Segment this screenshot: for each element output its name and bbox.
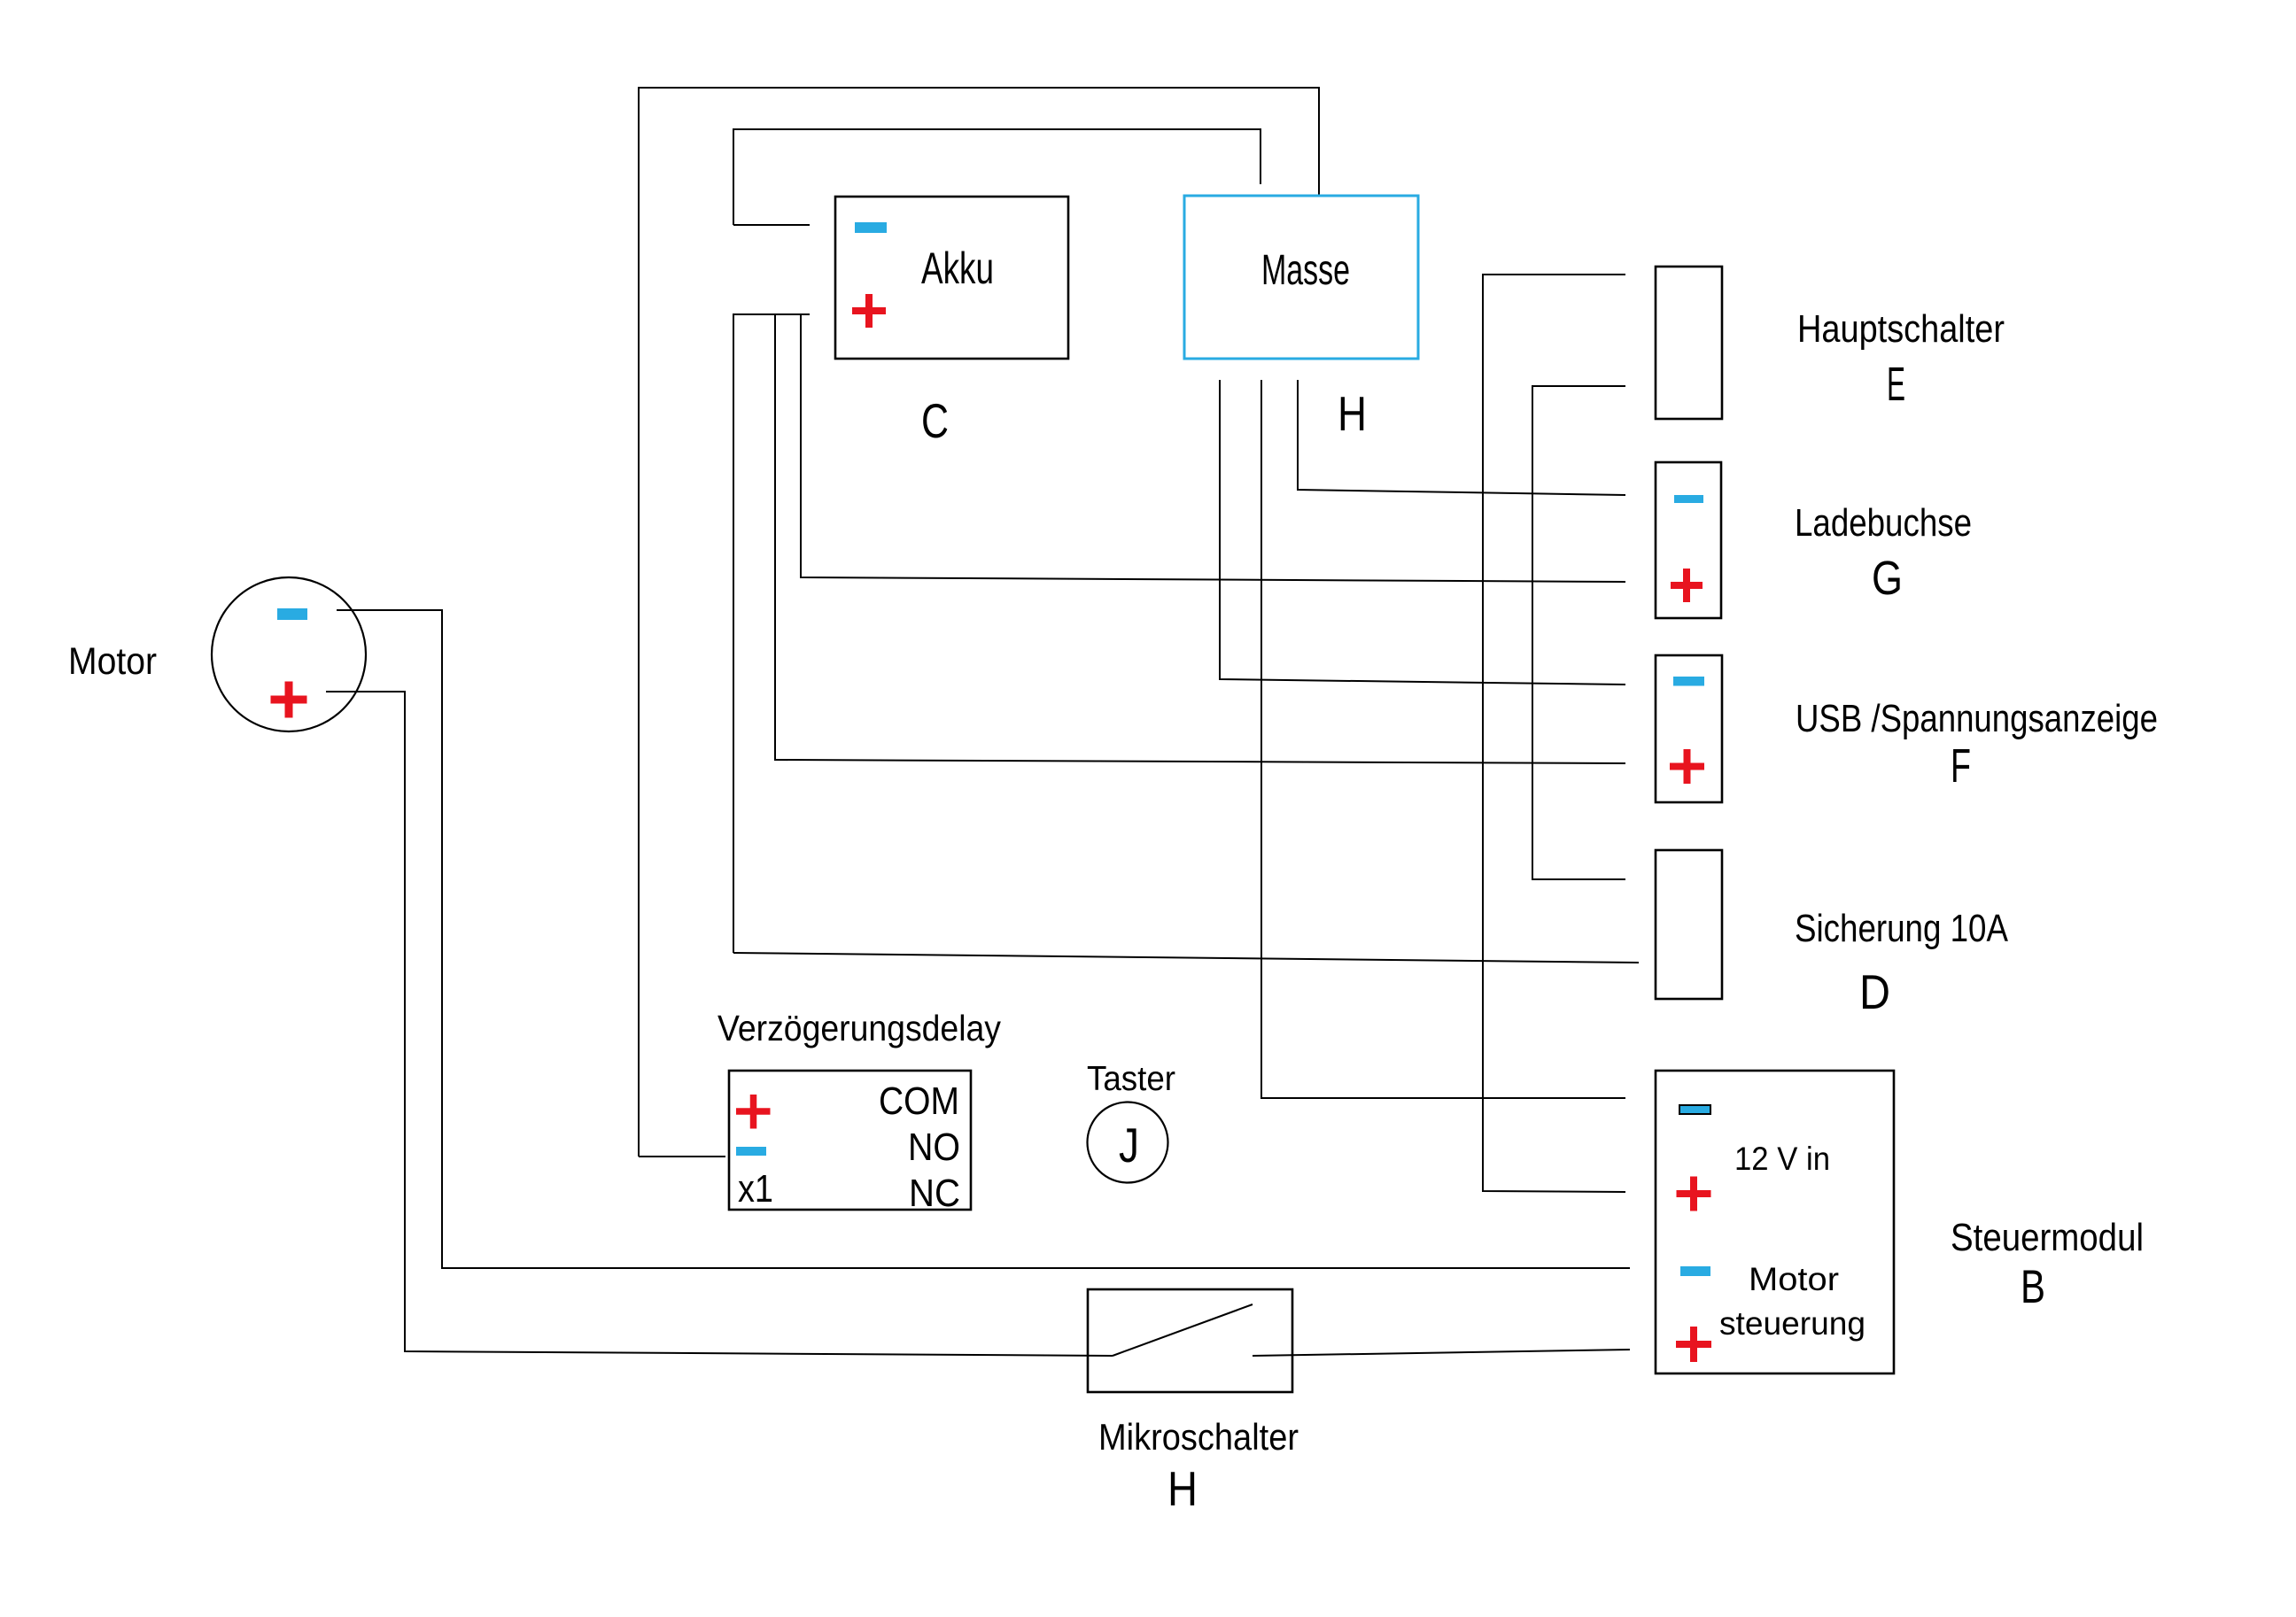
svg-text:12 V in: 12 V in [1734, 1141, 1830, 1177]
svg-text:H: H [1167, 1461, 1198, 1516]
svg-text:steuerung: steuerung [1719, 1305, 1865, 1342]
svg-text:E: E [1887, 358, 1905, 411]
svg-text:C: C [921, 393, 949, 448]
svg-text:H: H [1338, 386, 1367, 441]
svg-text:Hauptschalter: Hauptschalter [1797, 307, 2005, 351]
svg-text:x1: x1 [738, 1167, 773, 1211]
svg-text:Motor: Motor [1749, 1261, 1839, 1297]
svg-text:F: F [1951, 739, 1971, 793]
svg-text:D: D [1859, 964, 1890, 1019]
svg-text:NO: NO [908, 1126, 960, 1169]
svg-text:COM: COM [879, 1079, 959, 1123]
svg-text:Verzögerungsdelay: Verzögerungsdelay [717, 1008, 1001, 1048]
svg-text:Mikroschalter: Mikroschalter [1098, 1416, 1299, 1458]
svg-text:USB /Spannungsanzeige: USB /Spannungsanzeige [1796, 697, 2158, 740]
svg-text:J: J [1119, 1118, 1139, 1172]
svg-text:Sicherung 10A: Sicherung 10A [1795, 907, 2009, 950]
svg-text:Steuermodul: Steuermodul [1951, 1216, 2144, 1259]
svg-text:NC: NC [909, 1172, 960, 1215]
svg-text:Masse: Masse [1261, 247, 1350, 294]
svg-text:Akku: Akku [921, 244, 994, 293]
svg-text:B: B [2021, 1261, 2045, 1313]
svg-text:Motor: Motor [68, 640, 157, 683]
svg-text:G: G [1872, 552, 1903, 605]
svg-text:Taster: Taster [1087, 1060, 1175, 1098]
svg-text:Ladebuchse: Ladebuchse [1795, 501, 1972, 545]
